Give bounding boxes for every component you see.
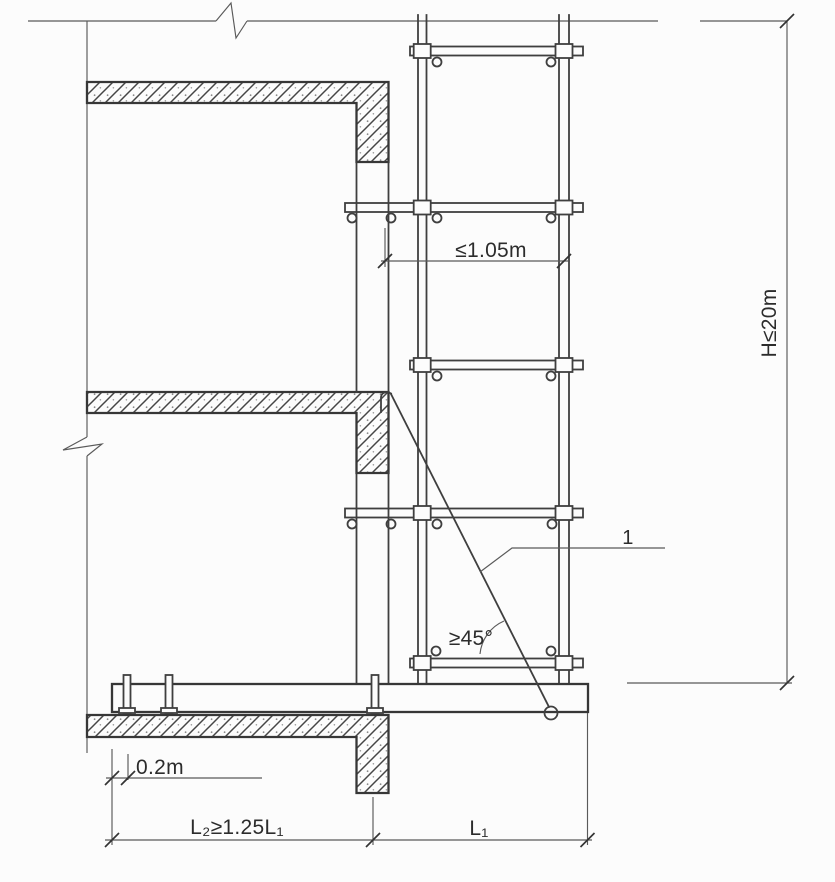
- middle-floor-slab: [87, 392, 389, 473]
- anchor-offset-label: 0.2m: [136, 756, 184, 779]
- coupler-blocks: [414, 44, 573, 670]
- leader-line: [480, 548, 665, 572]
- scaffold-detail-figure: ≤1.05m H≤20m 0.2m L₂≥1.25L₁ L₁: [0, 0, 835, 882]
- brace-angle-label: ≥45°: [449, 627, 493, 650]
- dim-total-height: H≤20m: [627, 14, 794, 690]
- total-height-label: H≤20m: [758, 288, 781, 357]
- inner-beam-length-label: L₂≥1.25L₁: [190, 816, 284, 839]
- bottom-floor-slab: [87, 715, 389, 793]
- callout-1-label: 1: [622, 527, 633, 549]
- building-structure: [28, 3, 658, 793]
- break-mark-top: [216, 3, 247, 38]
- dim-tie-spacing: ≤1.05m: [378, 228, 571, 268]
- cantilever-length-label: L₁: [469, 817, 488, 840]
- tie-spacing-label: ≤1.05m: [455, 239, 527, 262]
- ledger-row-4-wall-tie: [345, 509, 583, 518]
- break-mark-left: [63, 437, 102, 456]
- angle-annotation: ≥45°: [449, 621, 504, 654]
- inner-standard: [418, 15, 427, 684]
- top-floor-slab: [87, 82, 389, 162]
- scaffold-detail-drawing: ≤1.05m H≤20m 0.2m L₂≥1.25L₁ L₁: [0, 0, 835, 882]
- callout-leader: 1: [480, 527, 665, 572]
- cantilever-steel-beam: [112, 684, 588, 712]
- ledger-row-2-wall-tie: [345, 203, 583, 212]
- cantilever-platform: [112, 675, 588, 713]
- diagonal-brace: [381, 392, 558, 720]
- outer-standard: [559, 15, 569, 684]
